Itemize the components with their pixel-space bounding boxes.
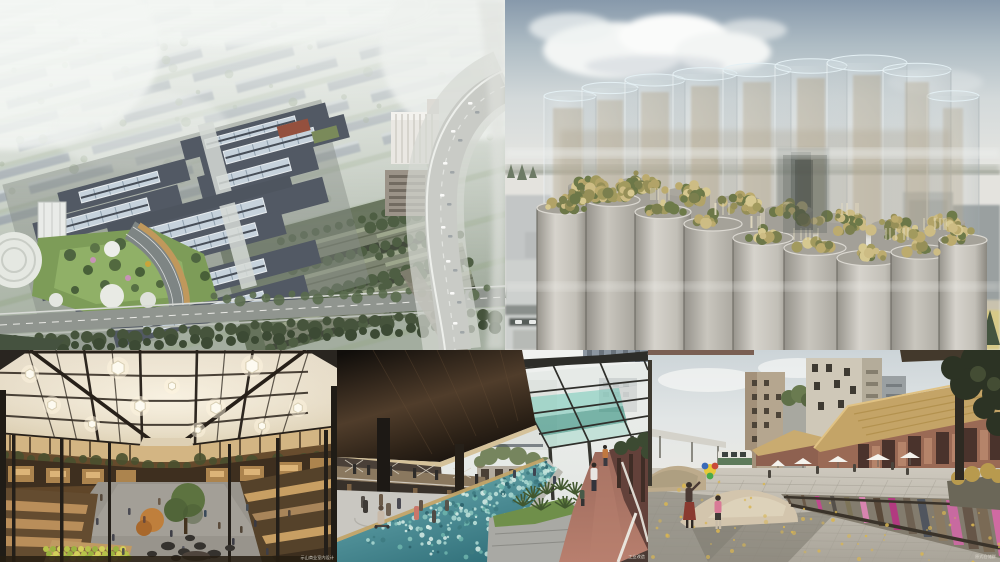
svg-text:工业改造: 工业改造: [628, 553, 646, 560]
svg-text:示山商业室内设计: 示山商业室内设计: [300, 554, 334, 561]
svg-text:原式仓储群: 原式仓储群: [975, 553, 997, 560]
